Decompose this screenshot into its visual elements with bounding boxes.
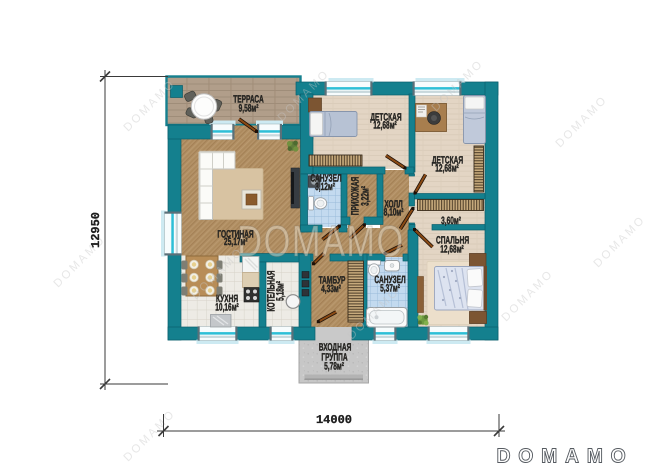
svg-text:5,78м²: 5,78м² [324,361,344,373]
svg-text:3,12м²: 3,12м² [315,181,335,193]
svg-text:4,33м²: 4,33м² [321,283,341,295]
svg-text:25,17м²: 25,17м² [224,236,248,248]
svg-text:12,68м²: 12,68м² [440,244,464,256]
svg-text:9,58м²: 9,58м² [239,103,259,115]
svg-text:DOMAMO: DOMAMO [496,445,633,467]
svg-text:5,18м²: 5,18м² [275,281,287,301]
svg-text:DOMAMO: DOMAMO [237,217,405,266]
svg-text:12,68м²: 12,68м² [435,163,459,175]
svg-text:8,10м²: 8,10м² [384,207,404,219]
svg-text:3,22м²: 3,22м² [360,186,372,206]
svg-text:5,37м²: 5,37м² [380,283,400,295]
svg-text:12950: 12950 [89,212,103,248]
svg-text:12,68м²: 12,68м² [373,120,397,132]
svg-text:14000: 14000 [316,413,352,427]
svg-text:10,16м²: 10,16м² [215,302,239,314]
svg-text:3,60м²: 3,60м² [441,215,461,227]
